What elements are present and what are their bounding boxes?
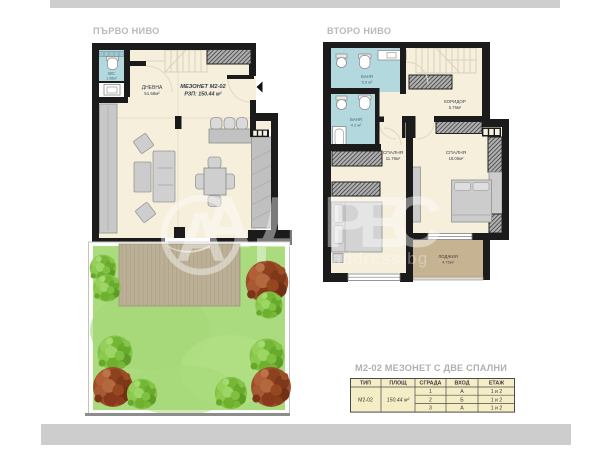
svg-text:БАНЯ: БАНЯ — [350, 117, 362, 122]
svg-text:ПЛОЩ: ПЛОЩ — [389, 381, 407, 387]
svg-text:КОРИДОР: КОРИДОР — [444, 99, 466, 104]
svg-text:СГРАДА: СГРАДА — [420, 381, 442, 387]
svg-text:2: 2 — [429, 397, 432, 403]
svg-text:3: 3 — [429, 406, 432, 412]
svg-text:БАНЯ: БАНЯ — [361, 74, 373, 79]
svg-text:1 и 2: 1 и 2 — [491, 389, 503, 395]
svg-text:address.bg: address.bg — [332, 250, 429, 268]
svg-text:5.76м²: 5.76м² — [449, 105, 462, 110]
svg-text:Д: Д — [256, 183, 307, 263]
svg-text:ЕТАЖ: ЕТАЖ — [489, 381, 504, 387]
svg-text:18.06м²: 18.06м² — [449, 156, 464, 161]
svg-text:WC: WC — [108, 71, 115, 76]
svg-text:ВХОД: ВХОД — [454, 381, 469, 387]
svg-text:А: А — [460, 406, 464, 412]
svg-text:А: А — [460, 389, 464, 395]
svg-text:ТИП: ТИП — [360, 381, 371, 387]
svg-text:1 и 2: 1 и 2 — [491, 406, 503, 412]
svg-text:4.75м²: 4.75м² — [442, 260, 455, 265]
svg-text:5.0 м²: 5.0 м² — [362, 80, 373, 85]
svg-text:150.44 м²: 150.44 м² — [387, 398, 410, 404]
svg-text:Б: Б — [460, 397, 464, 403]
svg-text:11.76м²: 11.76м² — [386, 156, 401, 161]
svg-text:МЕЗОНЕТ М2-02: МЕЗОНЕТ М2-02 — [180, 84, 226, 90]
svg-text:М2-02: М2-02 — [358, 398, 373, 404]
svg-text:1.98м²: 1.98м² — [106, 77, 117, 81]
svg-text:51.58м²: 51.58м² — [144, 91, 160, 96]
svg-text:РЗП: 150.44 м²: РЗП: 150.44 м² — [184, 92, 221, 98]
svg-text:1 и 2: 1 и 2 — [491, 397, 503, 403]
svg-text:1: 1 — [429, 389, 432, 395]
svg-text:А: А — [200, 183, 252, 263]
svg-text:4.2 м²: 4.2 м² — [351, 123, 362, 128]
